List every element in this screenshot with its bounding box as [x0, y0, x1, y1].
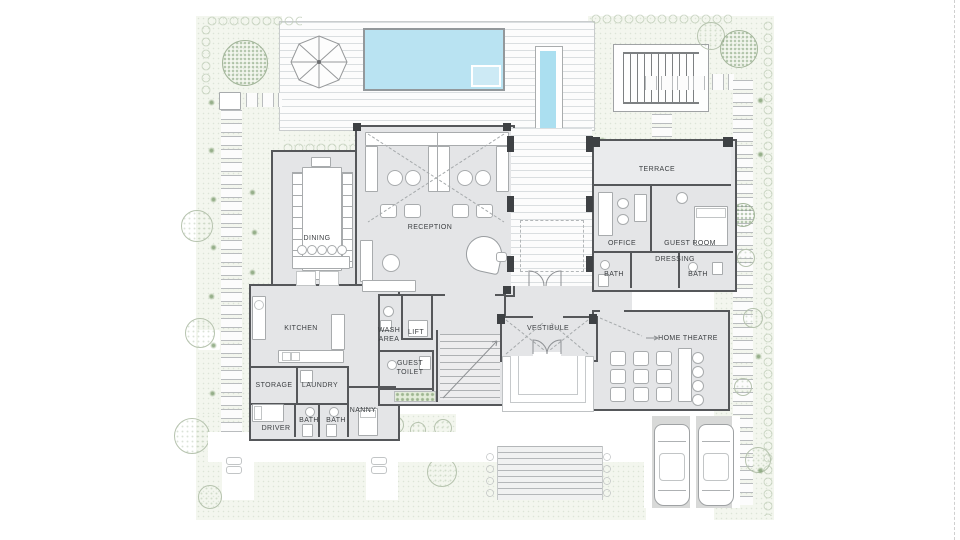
plant — [209, 195, 218, 204]
label-bath-office: BATH — [604, 270, 624, 279]
sofa — [362, 280, 416, 292]
plant — [756, 150, 765, 159]
sofa — [496, 146, 509, 192]
lift-wall — [431, 296, 433, 340]
column — [589, 314, 597, 324]
coffee-table — [382, 254, 400, 272]
driveway-divider — [690, 416, 696, 508]
label-wash-area: WASH AREA — [372, 326, 406, 344]
kitchen-wall — [249, 366, 349, 368]
swimming-pool — [363, 28, 505, 91]
plant — [207, 292, 216, 301]
toilet-wall — [378, 350, 434, 352]
plant — [756, 96, 765, 105]
office-sofa — [634, 194, 647, 222]
bedroom-band-wall — [594, 251, 733, 253]
label-vestibule: VESTIBULE — [527, 324, 569, 333]
bar-stool — [307, 245, 317, 255]
tree — [174, 418, 210, 454]
car — [698, 424, 734, 506]
storage-laundry-wall — [296, 368, 298, 405]
sofa-set — [365, 132, 439, 206]
page-edge-line — [954, 0, 957, 540]
office-desk — [598, 192, 613, 236]
label-bath-1: BATH — [299, 416, 319, 425]
column — [353, 123, 361, 131]
theatre-chair — [692, 352, 704, 364]
stepping-stones-link — [712, 74, 734, 90]
label-bath-2: BATH — [326, 416, 346, 425]
stove — [282, 352, 291, 361]
driveway-kerb — [644, 416, 652, 508]
car-roof — [659, 453, 685, 481]
planter — [394, 391, 436, 402]
entrance-steps — [497, 446, 603, 500]
plant — [207, 146, 216, 155]
column — [503, 286, 511, 294]
bar-appliance — [296, 271, 316, 286]
piano-stool — [496, 252, 507, 262]
nanny-west-wall — [347, 366, 349, 437]
entry-carpet — [520, 220, 584, 272]
coffee-table — [387, 170, 403, 186]
garden-bench — [371, 466, 387, 474]
bath-sink — [600, 260, 610, 270]
sofa — [365, 132, 441, 146]
sofa — [437, 132, 509, 146]
theatre-seat — [633, 369, 649, 384]
porch-step — [518, 356, 578, 395]
sofa — [360, 240, 373, 282]
tree — [222, 40, 268, 86]
plant — [207, 98, 216, 107]
tree — [734, 378, 752, 396]
tree — [198, 485, 222, 509]
dining-chair-head — [311, 157, 331, 167]
label-guest-toilet: GUEST TOILET — [389, 359, 431, 377]
theatre-chair — [692, 394, 704, 406]
sofa — [437, 146, 450, 192]
theatre-chair — [692, 366, 704, 378]
label-office: OFFICE — [608, 239, 636, 248]
column — [503, 123, 511, 131]
hedge-right-edge — [762, 20, 774, 516]
column — [586, 196, 593, 212]
column — [497, 314, 505, 324]
coffee-table — [457, 170, 473, 186]
plant — [208, 389, 217, 398]
stove — [291, 352, 300, 361]
sofa — [365, 146, 378, 192]
driver-bath-wall — [294, 405, 296, 437]
label-terrace: TERRACE — [639, 165, 675, 174]
theatre-seat — [633, 351, 649, 366]
terrace-wall — [594, 184, 731, 186]
theatre-seat — [610, 369, 626, 384]
wing-hall-opening — [610, 284, 680, 290]
column — [507, 136, 514, 152]
label-dressing: DRESSING — [655, 255, 695, 264]
armchair — [380, 204, 397, 218]
guest-chair — [676, 192, 688, 204]
plant — [754, 352, 763, 361]
label-lift: LIFT — [408, 328, 424, 337]
tree — [720, 30, 758, 68]
bar-stool — [337, 245, 347, 255]
garden-bench — [371, 457, 387, 465]
entry-walkway — [456, 408, 646, 450]
bar-stool — [297, 245, 307, 255]
tree — [181, 210, 213, 242]
theatre-console — [678, 348, 692, 402]
guest-bed-pillow — [696, 208, 726, 218]
stepping-stones-pergola — [652, 114, 672, 140]
plant — [209, 341, 218, 350]
garden-bench — [226, 466, 242, 474]
terrace-pillar — [723, 137, 733, 147]
column — [586, 256, 593, 272]
bath-wc — [326, 424, 337, 437]
theatre-opening — [600, 308, 624, 314]
stepping-stones-row — [645, 76, 705, 90]
step-planting — [485, 452, 495, 500]
label-driver: DRIVER — [262, 424, 291, 433]
garden-bench — [226, 457, 242, 465]
theatre-chair — [692, 380, 704, 392]
bar-stool — [327, 245, 337, 255]
office-guest-wall — [650, 186, 652, 252]
coffee-table — [405, 170, 421, 186]
staircase — [440, 334, 500, 400]
sofa-set — [360, 240, 426, 290]
label-kitchen: KITCHEN — [284, 324, 318, 333]
toilet-wall — [432, 350, 434, 392]
kitchen-counter — [331, 314, 345, 350]
wash-basin — [383, 306, 394, 317]
plant — [248, 188, 257, 197]
bath-wc — [712, 262, 723, 275]
toilet-wall — [378, 388, 434, 390]
car-windshield — [702, 441, 730, 442]
car-rear-window — [658, 490, 686, 491]
tree — [743, 308, 763, 328]
plant — [756, 466, 765, 475]
label-storage: STORAGE — [256, 381, 293, 390]
vestibule-door-opening — [533, 314, 563, 320]
armchair — [452, 204, 469, 218]
car-windshield — [658, 441, 686, 442]
plant — [209, 243, 218, 252]
theatre-seat — [656, 351, 672, 366]
office-chair — [617, 198, 629, 209]
hedge-top-left — [206, 15, 302, 27]
label-dining: DINING — [304, 234, 331, 243]
step-planting — [602, 452, 612, 500]
terrace-floor — [594, 141, 731, 184]
tree — [737, 249, 755, 267]
bar-counter — [292, 256, 350, 269]
office-chair — [617, 214, 629, 225]
bar-appliance — [319, 271, 339, 286]
label-reception: RECEPTION — [408, 223, 452, 232]
stair-wall — [436, 330, 438, 402]
theatre-seat — [610, 351, 626, 366]
column — [507, 256, 514, 272]
floor-plan: DINING RECEPTION TERRACE OFFICE GUEST RO… — [0, 0, 960, 540]
armchair — [476, 204, 493, 218]
theatre-seat — [656, 369, 672, 384]
driver-bed-pillow — [254, 406, 262, 420]
reception-hall-opening — [445, 289, 495, 297]
label-home-theatre: HOME THEATRE — [658, 334, 718, 343]
car — [654, 424, 690, 506]
label-laundry: LAUNDRY — [302, 381, 338, 390]
stepping-stone-large — [219, 92, 241, 110]
sofa-set — [437, 132, 511, 206]
parasol-icon — [286, 32, 352, 92]
hedge-left-edge — [200, 24, 212, 96]
car-roof — [703, 453, 729, 481]
column — [507, 196, 514, 212]
theatre-seat — [610, 387, 626, 402]
bath-wall — [630, 253, 632, 288]
label-guest-room: GUEST ROOM — [664, 239, 716, 248]
bar-stool — [317, 245, 327, 255]
stepping-stones-top-left — [246, 93, 282, 107]
column — [586, 136, 593, 152]
bath-wc — [302, 424, 313, 437]
coffee-table — [475, 170, 491, 186]
label-nanny: NANNY — [350, 406, 377, 415]
plant — [248, 268, 257, 277]
stepping-path-left — [221, 110, 242, 432]
theatre-seat — [656, 387, 672, 402]
car-rear-window — [702, 490, 730, 491]
plant — [250, 228, 259, 237]
kitchen-sink — [254, 300, 264, 310]
label-bath-guest: BATH — [688, 270, 708, 279]
theatre-seat — [633, 387, 649, 402]
pool-step — [471, 65, 501, 87]
armchair — [404, 204, 421, 218]
